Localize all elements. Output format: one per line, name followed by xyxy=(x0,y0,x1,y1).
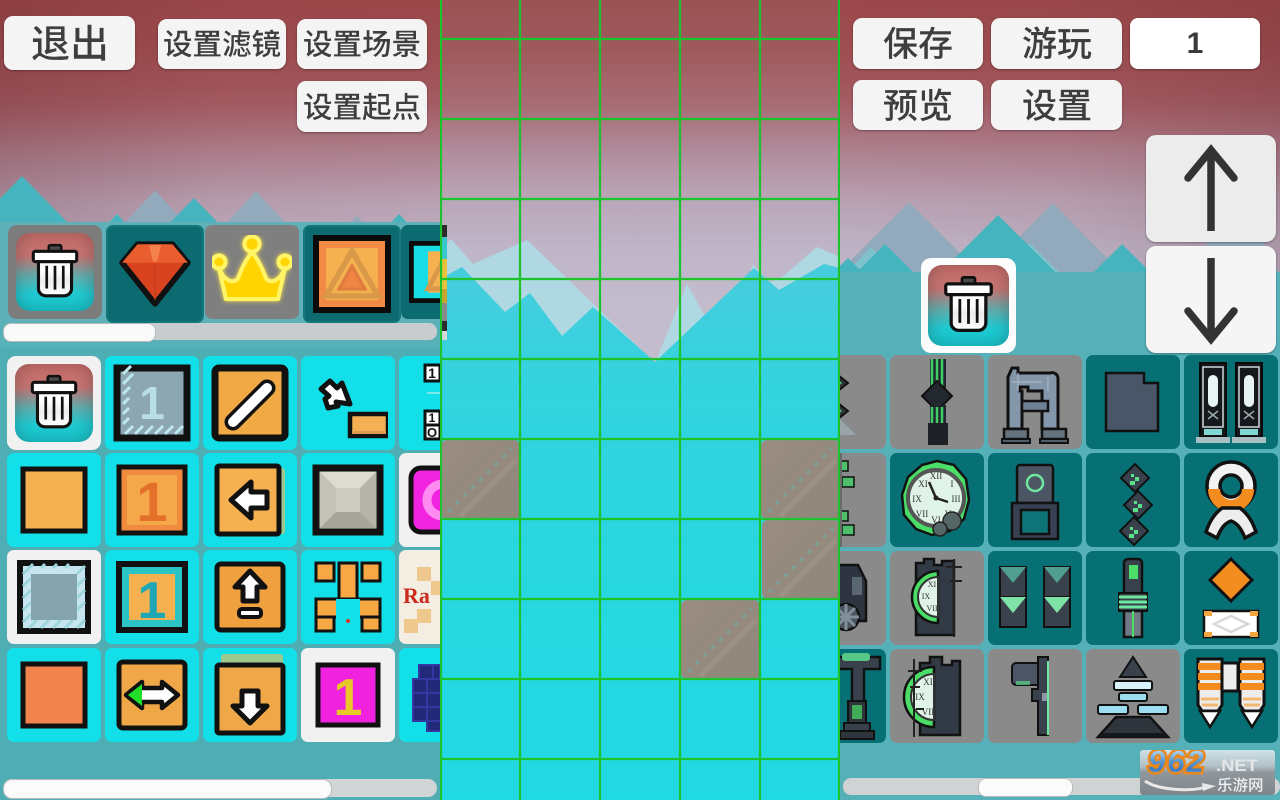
svg-text:III: III xyxy=(952,494,961,504)
svg-text:XI: XI xyxy=(923,677,933,687)
svg-text:IX: IX xyxy=(922,592,931,601)
svg-text:XI: XI xyxy=(928,580,937,589)
svg-text:IX: IX xyxy=(915,692,925,702)
svg-text:Ra: Ra xyxy=(403,583,430,608)
svg-text:VII: VII xyxy=(926,604,937,613)
svg-text:I: I xyxy=(951,479,954,489)
svg-text:1: 1 xyxy=(428,365,436,381)
svg-text:O: O xyxy=(427,425,437,440)
svg-text:1: 1 xyxy=(334,669,363,727)
svg-text:1: 1 xyxy=(136,470,167,533)
svg-text:1: 1 xyxy=(139,377,165,429)
svg-text:1: 1 xyxy=(429,411,436,425)
svg-text:1: 1 xyxy=(138,572,167,630)
svg-text:IX: IX xyxy=(912,494,922,504)
svg-text:XI: XI xyxy=(918,479,928,489)
svg-text:VII: VII xyxy=(916,509,929,519)
svg-text:XII: XII xyxy=(930,471,943,481)
